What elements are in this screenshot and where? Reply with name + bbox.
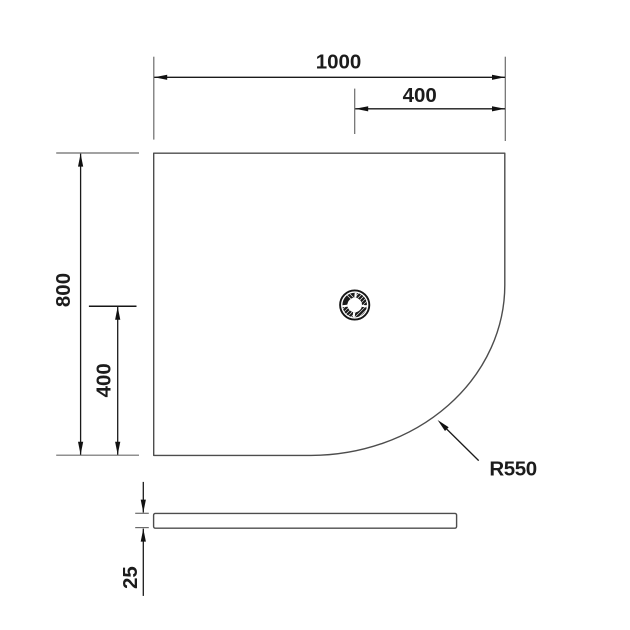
svg-text:400: 400 bbox=[403, 84, 437, 107]
svg-text:25: 25 bbox=[119, 566, 142, 589]
svg-text:800: 800 bbox=[52, 273, 75, 307]
svg-text:1000: 1000 bbox=[316, 51, 362, 74]
svg-text:400: 400 bbox=[92, 363, 115, 397]
svg-text:R550: R550 bbox=[489, 458, 536, 481]
